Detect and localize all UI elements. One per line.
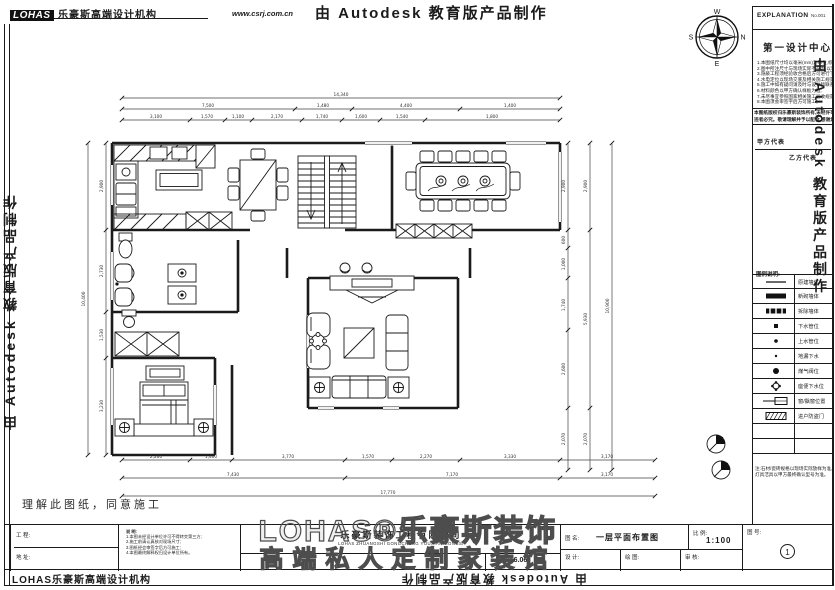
svg-text:5,930: 5,930 [583,313,589,326]
svg-text:1,740: 1,740 [561,299,567,312]
svg-text:3,100: 3,100 [150,114,163,120]
legend-symbol-window [758,394,794,408]
svg-text:1,740: 1,740 [316,114,329,120]
footer-agency: LOHAS乐豪斯高端设计机构 [12,571,151,586]
drawing-name-value: 一层平面布置图 [596,532,659,543]
svg-text:1,600: 1,600 [355,114,368,120]
powder-room [115,310,179,356]
dim-chain-bottom: 2,260 1,400 3,770 1,570 2,270 3,330 3,17… [120,454,657,498]
svg-text:1,540: 1,540 [396,114,409,120]
svg-text:2,170: 2,170 [271,114,284,120]
party-a-label: 甲方代表 [757,137,785,146]
declaration-text: 理解此图纸，同意施工 [22,496,162,512]
banquet-table [396,151,520,238]
svg-text:14,340: 14,340 [333,92,348,98]
dim-chain-top: 14,340 7,500 1,480 4,400 1,400 3,100 1,5… [120,92,562,122]
dim-chain-left: 2,900 2,730 1,530 3,230 10,400 [81,141,108,457]
autodesk-banner-bottom-inverted: 由 Autodesk 教育版产品制作 [400,571,587,587]
studio-name: 第一设计中心 [763,40,832,54]
study [115,233,196,306]
compass-rose: W N E S [686,6,748,68]
svg-text:7,500: 7,500 [202,103,215,109]
autodesk-banner-top: 由 Autodesk 教育版产品制作 [315,2,548,23]
legend-symbol-security-door [758,409,794,423]
svg-text:3,170: 3,170 [601,472,614,478]
svg-text:1,000: 1,000 [561,258,567,271]
legend-symbol-toilet-drain [758,379,794,393]
svg-text:3,770: 3,770 [282,454,295,460]
project-label: 工 程: [16,531,30,539]
svg-text:4,400: 4,400 [400,103,413,109]
scale-value: 1:100 [706,536,731,545]
svg-text:17,770: 17,770 [380,490,395,496]
svg-text:10,400: 10,400 [81,291,87,306]
compass-north-label: N [740,35,745,42]
legend-symbol-wall-new [758,289,794,303]
legend-symbol-pipe-up [758,334,794,348]
svg-text:1,570: 1,570 [201,114,214,120]
address-label: 地 址: [16,553,30,561]
svg-text:7,170: 7,170 [446,472,459,478]
floor-plan: 14,340 7,500 1,480 4,400 1,400 3,100 1,5… [50,70,756,522]
svg-text:2,270: 2,270 [420,454,433,460]
svg-text:2,900: 2,900 [583,180,589,193]
auditor-label: 审 核: [685,553,699,561]
sheet-label: 图 号: [747,528,761,536]
sheet-number: 1 [780,542,795,560]
autodesk-banner-right: 由 Autodesk 教育版产品制作 [810,58,830,478]
drafter-label: 绘 图: [625,553,639,561]
svg-text:3,170: 3,170 [601,454,614,460]
drawing-name-label: 图 名: [565,534,579,542]
autodesk-banner-left: 由 Autodesk 教育版产品制作 [0,170,20,430]
legend-symbol-wall-original [758,275,794,289]
kitchen [114,145,232,230]
svg-text:7,430: 7,430 [227,472,240,478]
website-url: www.csrj.com.cn [232,9,293,18]
svg-text:3,330: 3,330 [504,454,517,460]
svg-text:2,730: 2,730 [99,265,105,278]
logo: LOHAS [10,10,54,21]
compass-east-label: E [715,61,720,68]
cad-sheet: { "header": { "logo_mark": "LOHAS", "log… [0,0,835,590]
svg-text:1,400: 1,400 [504,103,517,109]
designer-label: 设 计: [565,553,579,561]
svg-text:2,070: 2,070 [583,433,589,446]
header: LOHAS 乐豪斯高端设计机构 [10,5,157,23]
svg-text:2,900: 2,900 [561,180,567,193]
staircase [298,156,356,228]
cabinet-x-strip [396,224,472,238]
svg-text:2,600: 2,600 [561,363,567,376]
svg-text:1,800: 1,800 [486,114,499,120]
svg-text:2,900: 2,900 [99,180,105,193]
detail-markers [707,435,730,479]
scale-label: 比 例: [693,529,707,537]
svg-text:10,900: 10,900 [605,298,611,313]
bedroom [115,366,213,436]
living-room [307,263,414,398]
company-block: 乐豪斯装饰工程有限公司 LOHAS ZHUANGSHI GONGCHENG YO… [244,528,558,546]
svg-text:1,100: 1,100 [232,114,245,120]
svg-text:2,260: 2,260 [150,454,163,460]
title-bar: 工 程: 地 址: 说 明: 1.本图未经设计单位许可不得转交第三方; 2.施工… [4,524,834,570]
explanation-title: EXPLANATION [757,12,809,19]
svg-text:600: 600 [561,236,567,244]
dining-table [228,149,288,221]
date-value: 2016.06 [502,557,527,564]
svg-text:3,230: 3,230 [99,400,105,413]
svg-text:1,530: 1,530 [99,329,105,342]
compass-west-label: W [714,9,721,16]
svg-text:1,480: 1,480 [317,103,330,109]
legend-symbol-floor-drain [758,349,794,363]
svg-text:1,570: 1,570 [362,454,375,460]
legend-symbol-gas-valve [758,364,794,378]
svg-text:1,400: 1,400 [205,454,218,460]
svg-text:2,070: 2,070 [561,433,567,446]
legend-symbol-pipe-down [758,319,794,333]
compass-south-label: S [689,35,694,42]
dim-chain-right: 2,900 600 1,000 1,740 2,600 2,070 2,900 … [561,141,614,472]
legend-symbol-wall-demolish [758,304,794,318]
company-name: 乐豪斯装饰工程有限公司 [244,528,558,541]
logo-text: 乐豪斯高端设计机构 [58,10,157,21]
explanation-no: No.001 [811,13,826,18]
company-name-en: LOHAS ZHUANGSHI GONGCHENG YOUXIAN GONGSI [244,541,558,546]
compass-star [698,18,736,56]
construction-notes: 说 明: 1.本图未经设计单位许可不得转交第三方; 2.施工前请认真核对现场尺寸… [126,529,238,555]
